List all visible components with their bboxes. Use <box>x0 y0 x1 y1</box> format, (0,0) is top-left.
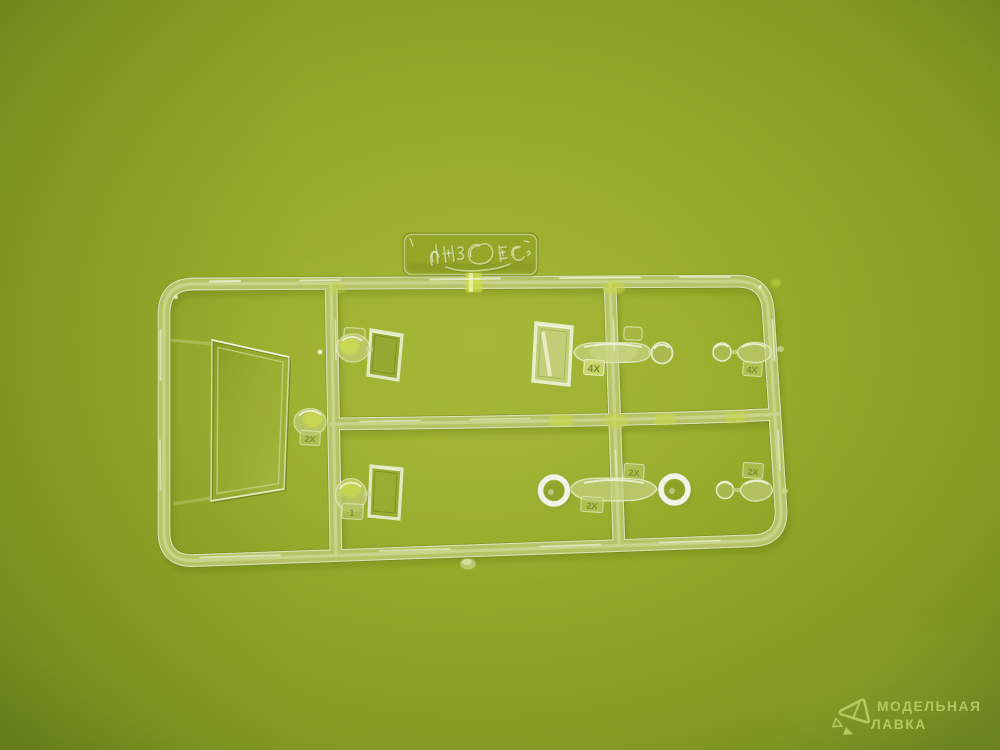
svg-text:1: 1 <box>349 508 355 518</box>
svg-text:2X: 2X <box>747 467 759 478</box>
svg-text:4X: 4X <box>587 364 600 376</box>
svg-text:МОДЕЛЬНАЯ: МОДЕЛЬНАЯ <box>877 699 981 714</box>
svg-text:2X: 2X <box>304 434 316 445</box>
svg-text:ЛАВКА: ЛАВКА <box>871 717 927 732</box>
svg-text:2X: 2X <box>586 501 598 512</box>
svg-text:4X: 4X <box>746 365 758 376</box>
svg-text:2X: 2X <box>628 468 640 479</box>
